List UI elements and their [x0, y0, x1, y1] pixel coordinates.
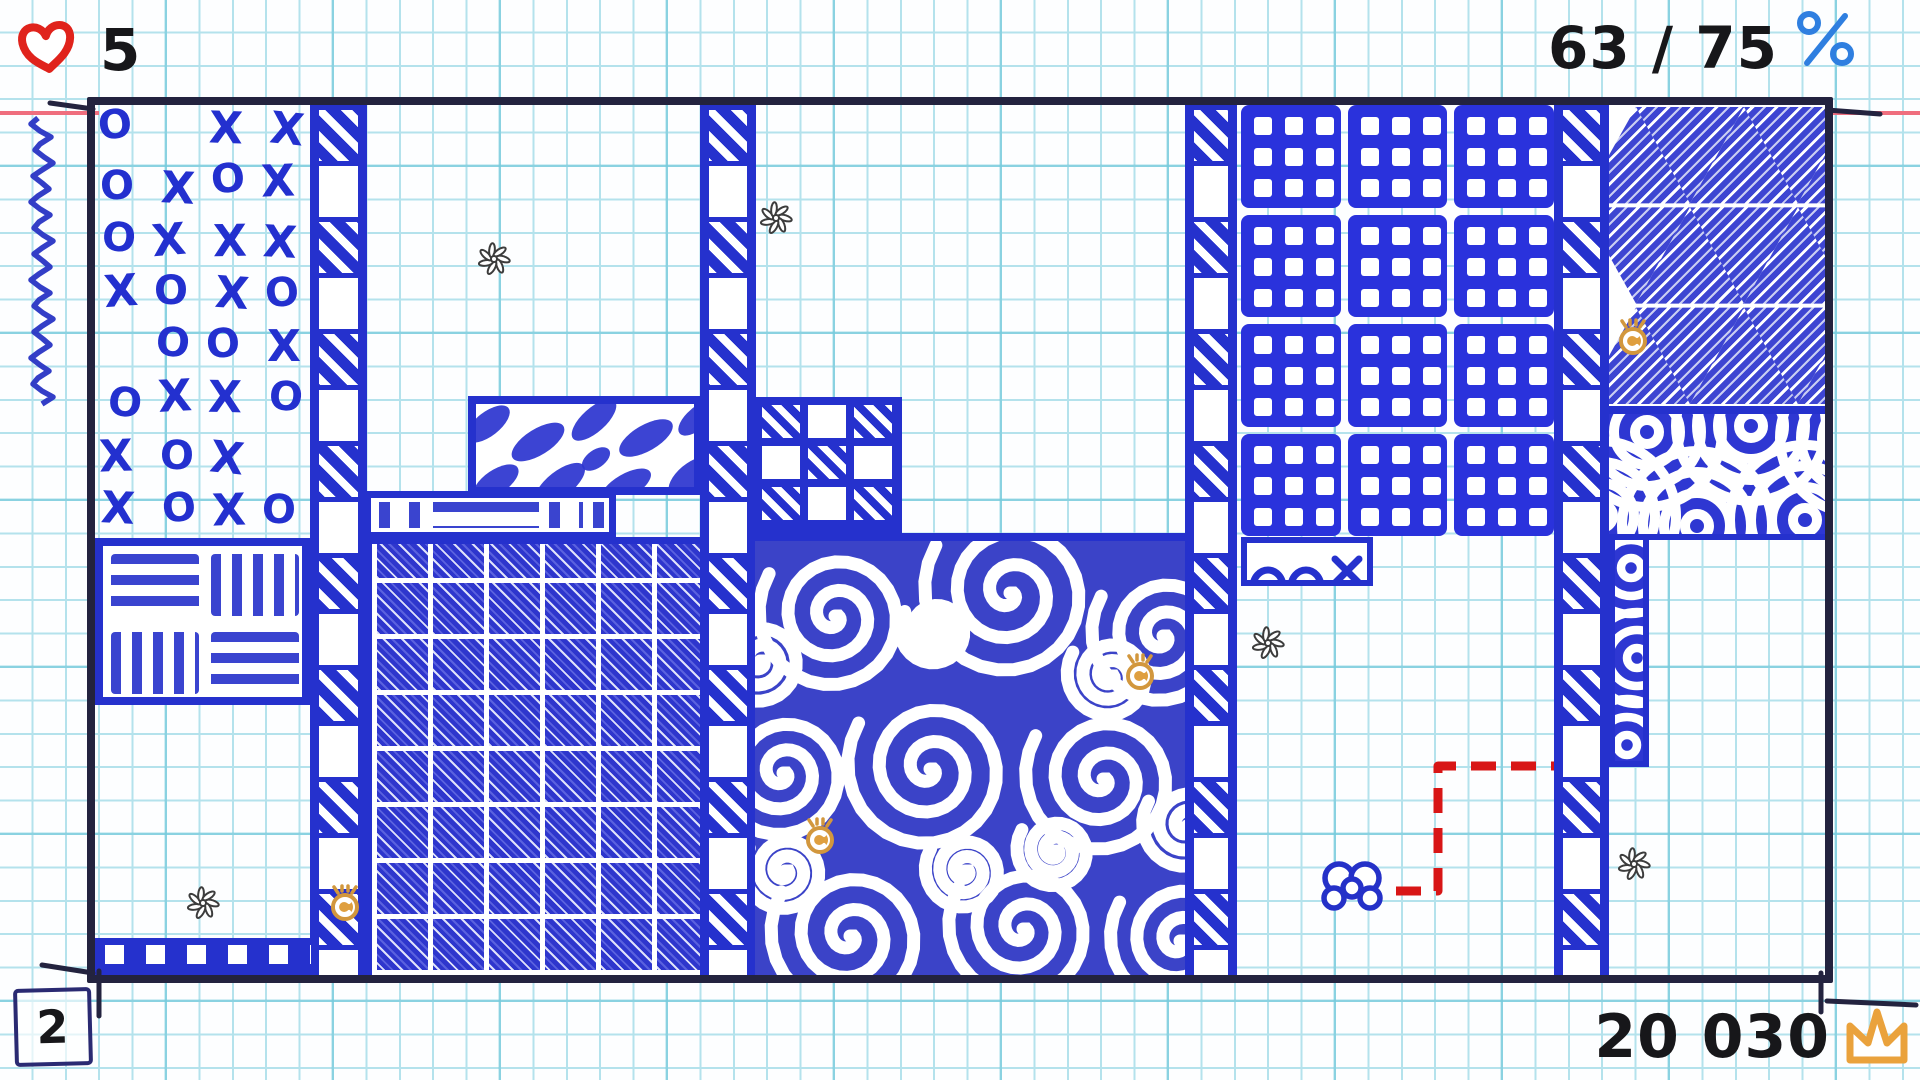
level-number: 2 [36, 1000, 70, 1055]
progress-counter: 63 / 75 [1548, 14, 1778, 82]
game-stage: OXXOXOXOXXXXOXOOOXOXXOXOXXOXO 5 63 / 75 … [0, 0, 1920, 1080]
heart-icon [11, 13, 83, 82]
lives-count: 5 [100, 16, 141, 84]
crown-icon [1838, 1000, 1914, 1074]
percent-icon [1794, 8, 1858, 74]
score-value: 20 030 [1594, 1002, 1830, 1072]
level-box: 2 [13, 987, 93, 1067]
playfield-border [87, 97, 1833, 983]
